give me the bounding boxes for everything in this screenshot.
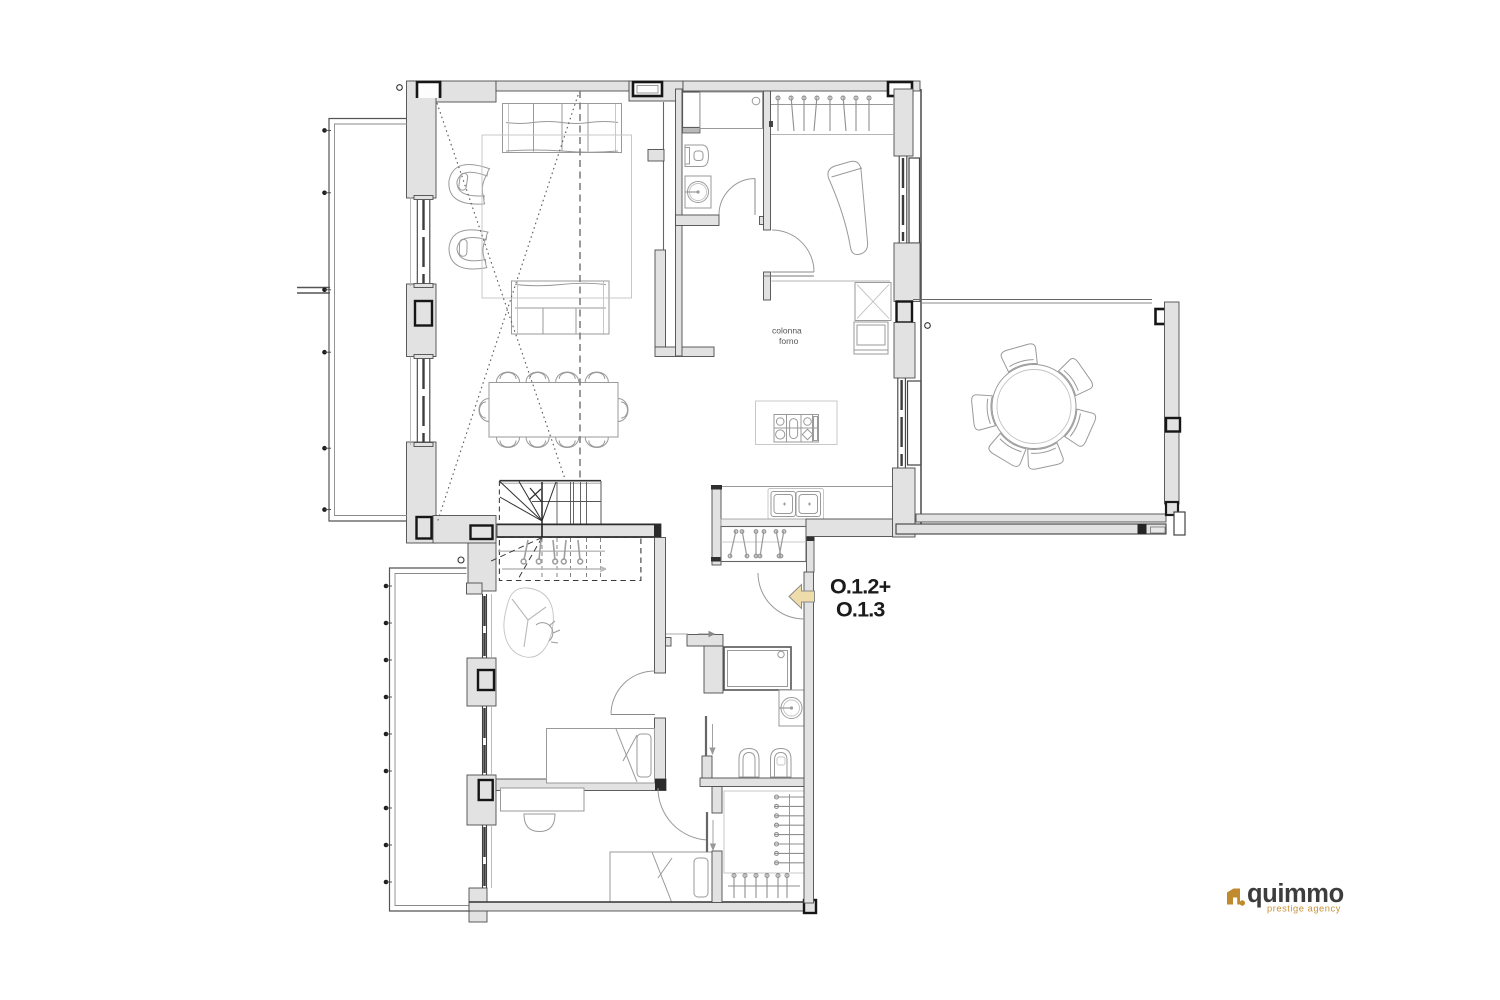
svg-text:O.1.3: O.1.3 <box>836 598 885 622</box>
svg-text:O.1.2+: O.1.2+ <box>830 575 891 599</box>
svg-text:forno: forno <box>779 336 799 346</box>
svg-text:colonna: colonna <box>772 326 802 336</box>
svg-text:prestige agency: prestige agency <box>1267 904 1341 914</box>
